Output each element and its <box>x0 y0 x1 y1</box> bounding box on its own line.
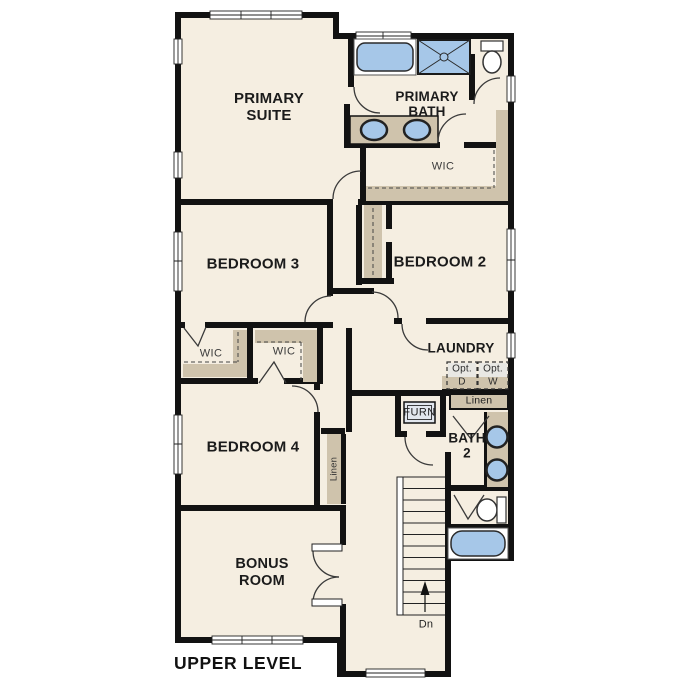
floor-plan: PRIMARY SUITE PRIMARY BATH WIC BEDROOM 3… <box>0 0 687 687</box>
primary-wic-shelving <box>366 186 508 201</box>
wall <box>356 278 394 284</box>
room-label-primary-suite: PRIMARY SUITE <box>234 90 304 124</box>
wall <box>247 322 253 383</box>
wall <box>360 146 366 205</box>
label-opt-washer: Opt. W <box>483 364 503 389</box>
wall <box>346 328 352 432</box>
wall <box>331 288 374 294</box>
wall <box>175 199 333 205</box>
wall <box>175 378 258 384</box>
label-furnace: FURN <box>403 404 435 421</box>
wic-left-shelving <box>183 364 247 377</box>
room-label-primary-wic: WIC <box>432 159 455 176</box>
primary-bathtub <box>357 43 413 71</box>
primary-toilet-bowl <box>483 51 501 73</box>
room-label-laundry: LAUNDRY <box>428 341 495 356</box>
label-linen-hall: Linen <box>326 457 343 481</box>
wall <box>386 205 392 229</box>
bonus-door-panel <box>312 544 342 551</box>
bath2-toilet-bowl <box>477 499 497 521</box>
bath2-bathtub <box>451 531 505 556</box>
wall <box>175 322 185 328</box>
wic-right-shelving <box>303 330 317 382</box>
wall <box>426 318 508 324</box>
bath2-sink <box>487 427 508 448</box>
floor-plan-drawing <box>0 0 687 687</box>
wall <box>426 431 446 437</box>
primary-shower-drain <box>440 53 448 61</box>
wall <box>317 322 323 384</box>
wall <box>440 396 446 437</box>
primary-wic-shelving <box>496 110 508 188</box>
wall <box>346 390 450 396</box>
room-label-primary-bath: PRIMARY BATH <box>395 89 458 119</box>
wall <box>314 384 320 390</box>
primary-sink <box>361 120 387 140</box>
label-linen-bath: Linen <box>466 393 493 410</box>
bath2-toilet-tank <box>497 497 506 523</box>
wall <box>175 505 346 511</box>
wall <box>348 39 354 87</box>
wall <box>205 322 333 328</box>
room-label-bedroom-3: BEDROOM 3 <box>207 256 300 273</box>
room-label-bonus-room: BONUS ROOM <box>235 556 288 590</box>
wall <box>356 205 362 285</box>
wall <box>395 396 401 437</box>
wall <box>340 511 346 545</box>
stair-rail <box>397 477 403 615</box>
wall <box>386 242 392 284</box>
label-opt-dryer: Opt. D <box>452 364 472 389</box>
wall <box>327 199 333 296</box>
plan-title: UPPER LEVEL <box>174 653 302 674</box>
wall <box>321 428 345 434</box>
wall <box>340 604 346 671</box>
wall <box>395 431 407 437</box>
wall <box>394 318 402 324</box>
primary-sink <box>404 120 430 140</box>
room-label-bedroom-4: BEDROOM 4 <box>207 439 300 456</box>
label-stairs-down: Dn <box>419 617 433 634</box>
wall <box>344 104 350 144</box>
room-label-bedroom-2: BEDROOM 2 <box>394 254 487 271</box>
bonus-door-panel <box>312 599 342 606</box>
bath2-sink <box>487 460 508 481</box>
room-label-bath-2: BATH 2 <box>448 432 485 461</box>
wall <box>314 412 320 511</box>
primary-toilet-tank <box>481 41 503 51</box>
room-label-wic-right: WIC <box>273 344 296 361</box>
room-label-wic-left: WIC <box>200 346 223 363</box>
